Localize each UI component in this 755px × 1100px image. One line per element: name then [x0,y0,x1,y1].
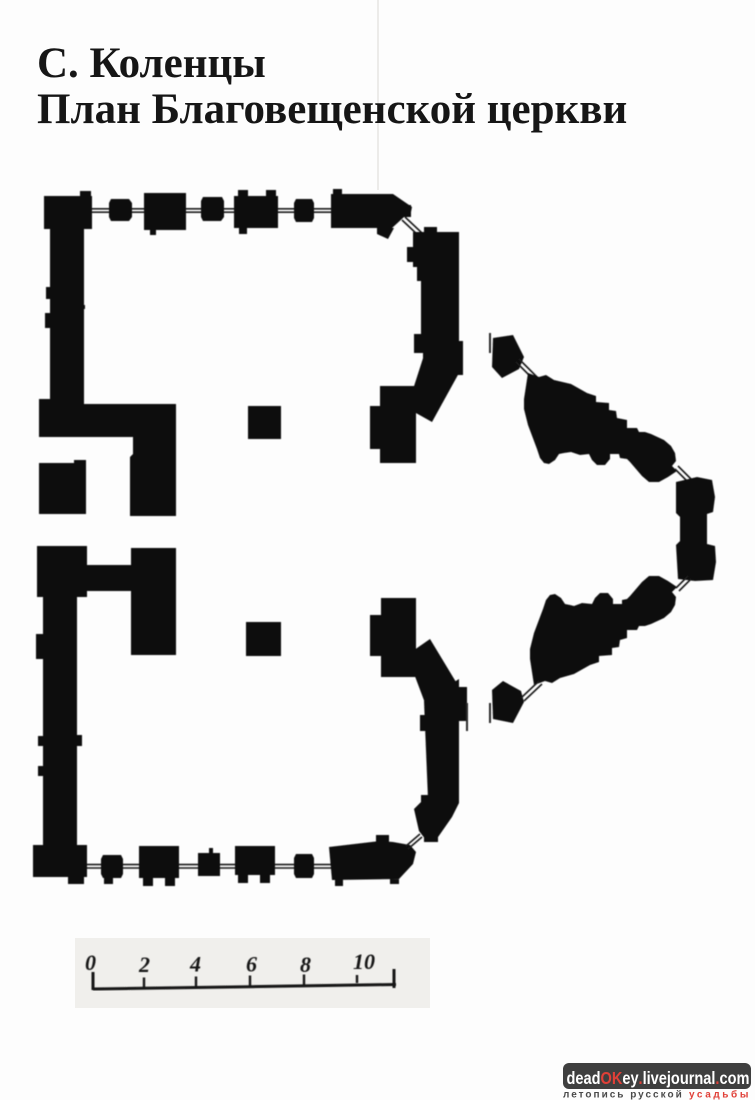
svg-text:0: 0 [85,950,96,975]
svg-text:План Благовещенской церкви: План Благовещенской церкви [37,86,627,133]
svg-text:10: 10 [353,949,375,974]
svg-text:4: 4 [189,952,201,977]
svg-text:летопись русской: летопись русской [563,1090,684,1100]
svg-text:усадьбы: усадьбы [689,1089,751,1100]
svg-text:8: 8 [300,952,311,977]
svg-text:С. Коленцы: С. Коленцы [37,40,266,87]
svg-text:2: 2 [138,952,150,977]
svg-text:deadOKey.livejournal.com: deadOKey.livejournal.com [567,1069,750,1089]
svg-text:6: 6 [246,952,257,977]
